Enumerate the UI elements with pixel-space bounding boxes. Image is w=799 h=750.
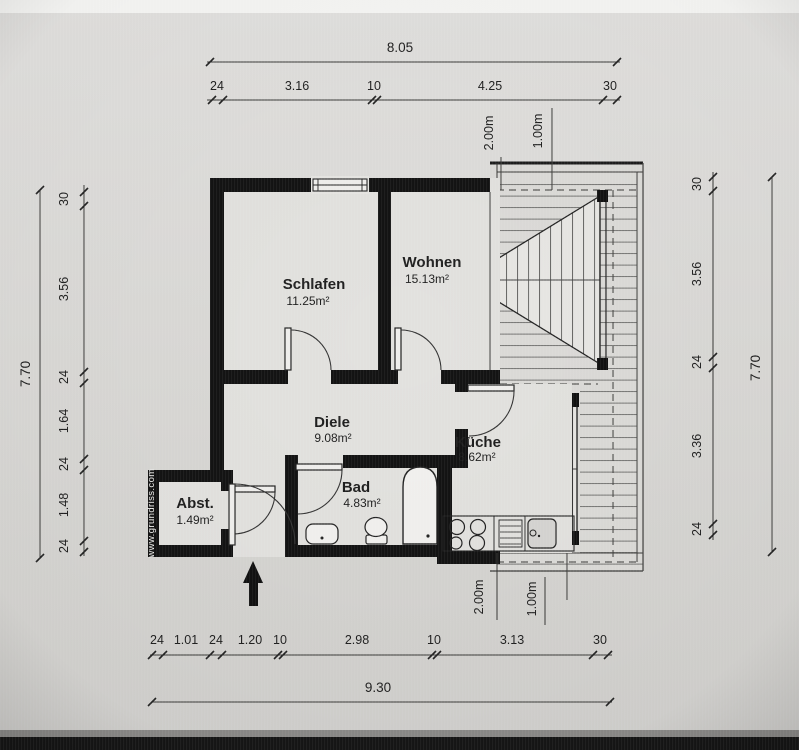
vignette: [0, 0, 799, 750]
floorplan-photo: Schlafen 11.25m² Wohnen 15.13m² Diele 9.…: [0, 0, 799, 750]
floorplan-svg: Schlafen 11.25m² Wohnen 15.13m² Diele 9.…: [0, 0, 799, 750]
